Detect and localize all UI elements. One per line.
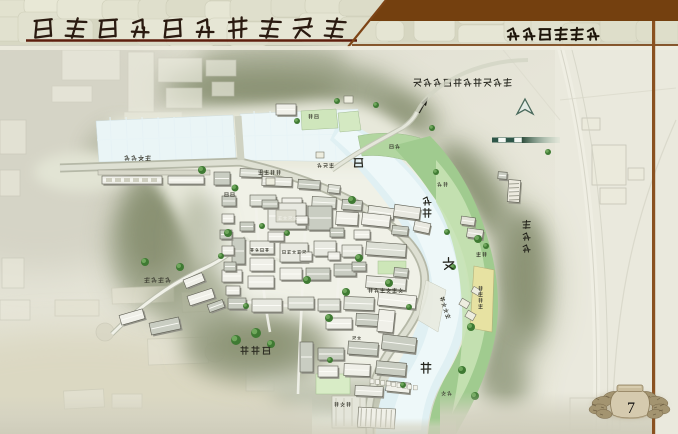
svg-text:7: 7	[627, 400, 635, 417]
